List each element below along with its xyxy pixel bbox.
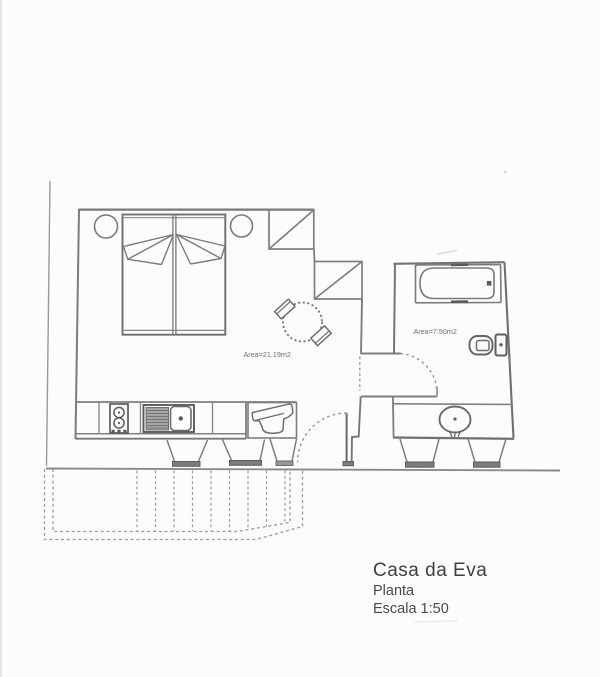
svg-text:Area=21.19m2: Area=21.19m2 [244,350,291,359]
svg-text:Area=7.50m2: Area=7.50m2 [414,327,457,336]
